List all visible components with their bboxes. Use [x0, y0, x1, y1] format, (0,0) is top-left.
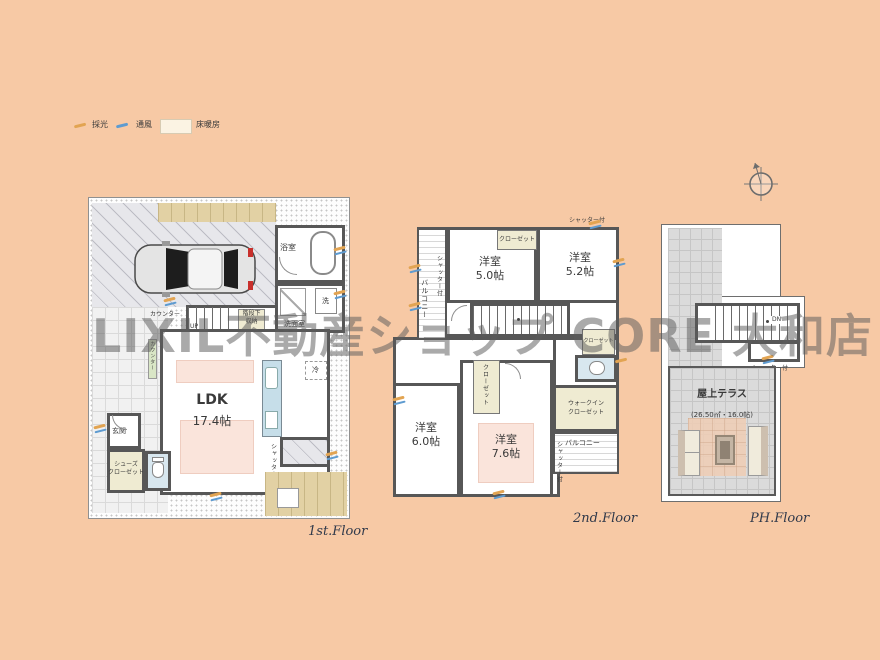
fridge-label: 冷 [312, 366, 319, 375]
garden-table-icon [277, 488, 299, 508]
toilet-tank-icon-1f [152, 457, 164, 462]
watermark-text: LIXIL不動産ショップ CORE 大和店 [92, 300, 873, 366]
stove-icon [265, 411, 278, 429]
kitchen-sink-icon [265, 367, 278, 389]
bathtub-icon [310, 231, 336, 275]
daylight-arrow-icon [74, 123, 86, 128]
roof-terrace-label: 屋上テラス (26.50㎡・16.0帖) [674, 382, 770, 422]
legend-daylight-label: 採光 [92, 120, 108, 130]
floor-heating-swatch [160, 119, 192, 134]
terrace-table-top [720, 441, 730, 459]
closet-a-label: クローゼット [497, 236, 537, 244]
bathroom-label: 浴室 [280, 243, 296, 253]
floor-ph-label: PH.Floor [750, 511, 809, 526]
legend: 採光 通風 床暖房 [70, 116, 240, 136]
legend-floor-heating-label: 床暖房 [196, 120, 220, 130]
legend-ventilation-label: 通風 [136, 120, 152, 130]
ventilation-arrow-icon [116, 123, 128, 128]
bedroom-d-label: 洋室7.6帖 [478, 433, 534, 461]
car-icon [132, 239, 258, 299]
closet-c-label: クローゼット [481, 364, 489, 412]
bedroom-a-label: 洋室5.0帖 [463, 255, 517, 283]
bedroom-b-label: 洋室5.2帖 [553, 251, 607, 279]
terrace-sofa-left [678, 430, 700, 476]
compass-icon [740, 160, 782, 204]
daylight-arrow-icon [612, 258, 625, 268]
shoe-closet-label: シューズクローゼット [107, 461, 145, 478]
shutter-label-2f-balcony: シャッター付 [555, 441, 563, 485]
floor-plan-canvas: 採光 通風 床暖房 LIXIL不動産ショップ CORE 大和店 [0, 0, 880, 660]
toilet-icon-1f [152, 462, 164, 478]
terrace-sofa-left-divider [685, 452, 700, 453]
bedroom-c-label: 洋室6.0帖 [401, 421, 451, 449]
balcony-right-label: バルコニー [565, 439, 600, 448]
terrace-sofa-right [748, 426, 768, 476]
daylight-arrow-icon [492, 490, 505, 500]
ldk-label: LDK 17.4帖 [180, 389, 244, 430]
floor2-label: 2nd.Floor [573, 511, 637, 526]
walk-in-closet-label: ウォークインクローゼット [553, 399, 619, 417]
floor1-label: 1st.Floor [308, 524, 367, 539]
fence-strip [158, 203, 276, 222]
shuttered-deck [280, 437, 330, 467]
